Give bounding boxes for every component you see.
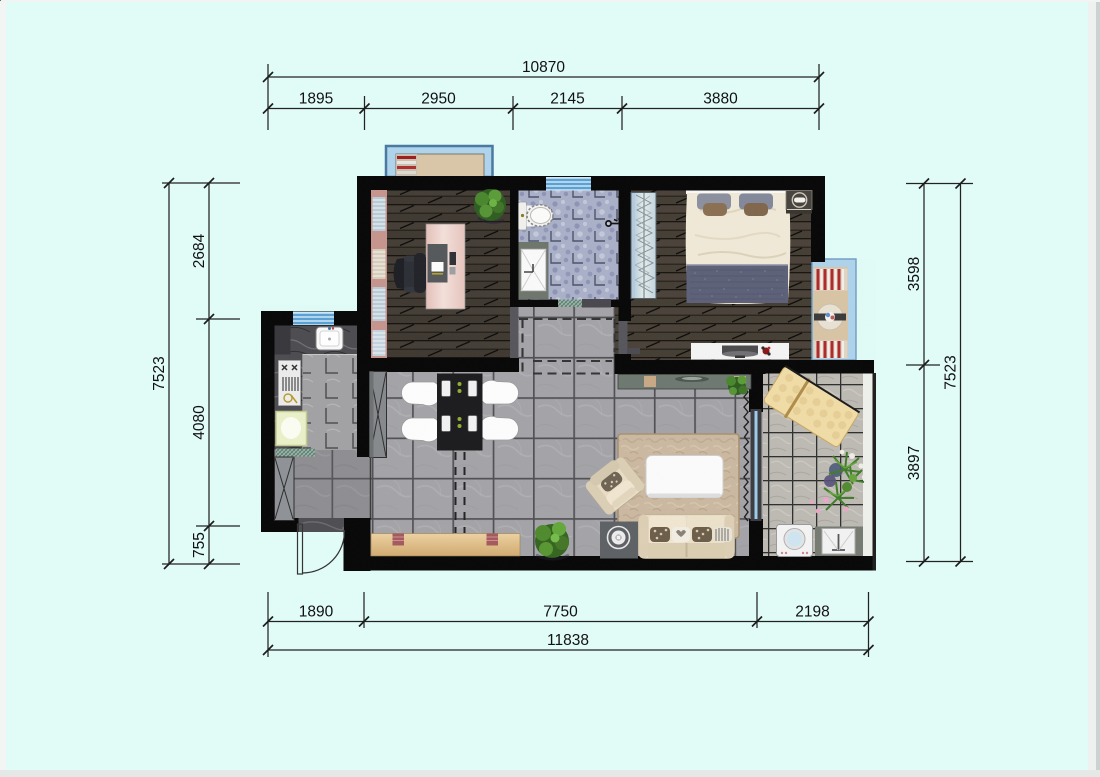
svg-text:1890: 1890 [299,604,334,621]
svg-text:3598: 3598 [906,257,923,291]
svg-text:1895: 1895 [299,91,333,108]
svg-text:7750: 7750 [543,604,578,621]
svg-text:7523: 7523 [943,355,960,389]
svg-text:3897: 3897 [906,446,923,480]
svg-text:10870: 10870 [522,59,565,76]
svg-text:3880: 3880 [703,91,738,108]
svg-text:2145: 2145 [550,91,584,108]
svg-text:11838: 11838 [547,632,589,649]
svg-text:2684: 2684 [191,233,208,268]
svg-text:2198: 2198 [795,604,829,621]
svg-text:2950: 2950 [421,91,456,108]
svg-text:7523: 7523 [151,356,168,390]
svg-text:4080: 4080 [191,405,208,440]
svg-text:755: 755 [191,532,208,558]
